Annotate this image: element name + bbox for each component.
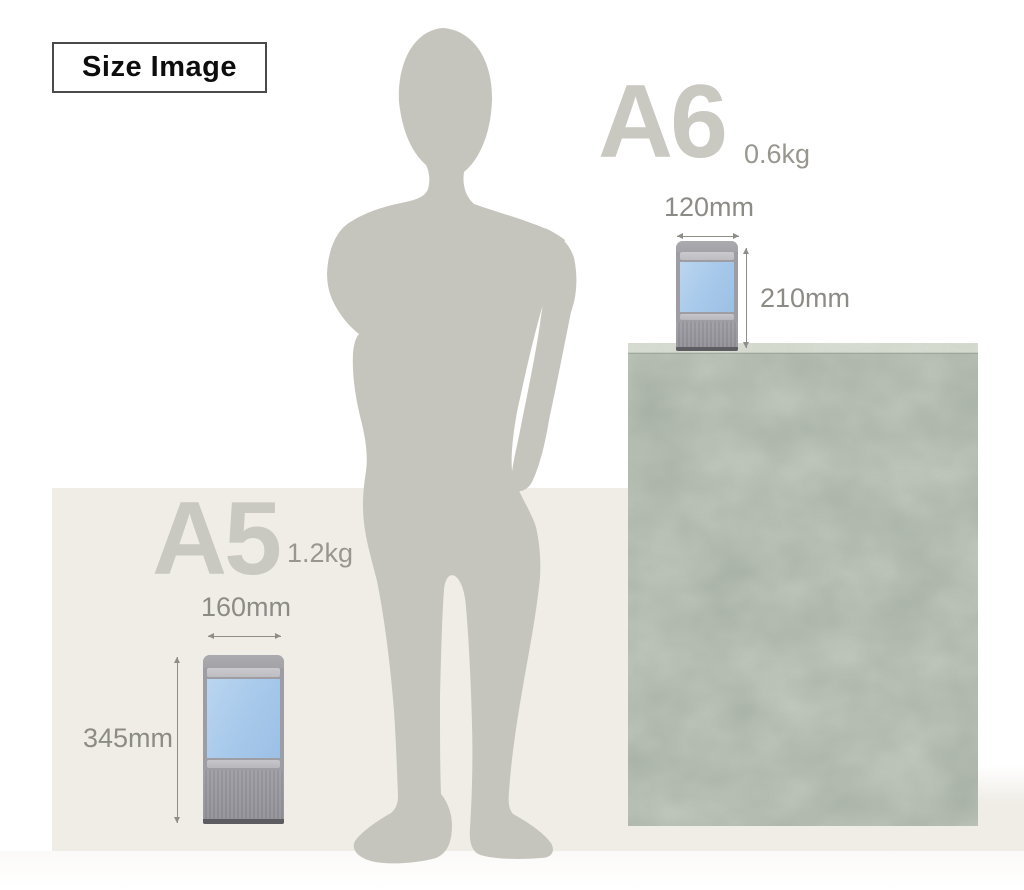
floor-fade-overlay bbox=[977, 488, 1024, 803]
a6-device-foot bbox=[676, 347, 738, 351]
a6-device-lower-strip bbox=[680, 314, 734, 320]
a5-device-base bbox=[203, 770, 284, 819]
a6-signage-device bbox=[676, 241, 738, 351]
a5-device-lower-strip bbox=[207, 760, 280, 768]
counter-block bbox=[628, 343, 978, 826]
a5-signage-device bbox=[203, 655, 284, 824]
a5-device-screen bbox=[207, 679, 280, 758]
a5-height-label: 345mm bbox=[83, 723, 173, 754]
a6-device-speaker-strip bbox=[680, 252, 734, 260]
a5-height-measure-line bbox=[177, 657, 178, 823]
a5-product-name: A5 bbox=[152, 492, 279, 588]
a6-width-label: 120mm bbox=[664, 192, 750, 223]
a6-height-label: 210mm bbox=[760, 283, 850, 314]
a6-product-name: A6 bbox=[598, 75, 725, 171]
a6-device-base bbox=[676, 322, 738, 347]
person-silhouette bbox=[320, 24, 582, 869]
a5-width-measure-line bbox=[208, 636, 281, 637]
size-image-badge: Size Image bbox=[52, 42, 267, 93]
a6-weight-label: 0.6kg bbox=[744, 139, 810, 170]
a5-width-label: 160mm bbox=[201, 592, 287, 623]
a5-device-speaker-strip bbox=[207, 668, 280, 677]
a6-device-top-cap bbox=[676, 241, 738, 252]
a5-weight-label: 1.2kg bbox=[287, 538, 353, 569]
size-image-badge-label: Size Image bbox=[82, 51, 237, 84]
a6-width-measure-line bbox=[677, 236, 739, 237]
a5-device-top-cap bbox=[203, 655, 284, 668]
size-comparison-diagram: Size Image A6 0.6kg 120mm 210mm A5 1.2kg… bbox=[0, 0, 1024, 890]
a5-device-foot bbox=[203, 819, 284, 824]
a6-height-measure-line bbox=[746, 248, 747, 348]
a6-device-screen bbox=[680, 262, 734, 312]
